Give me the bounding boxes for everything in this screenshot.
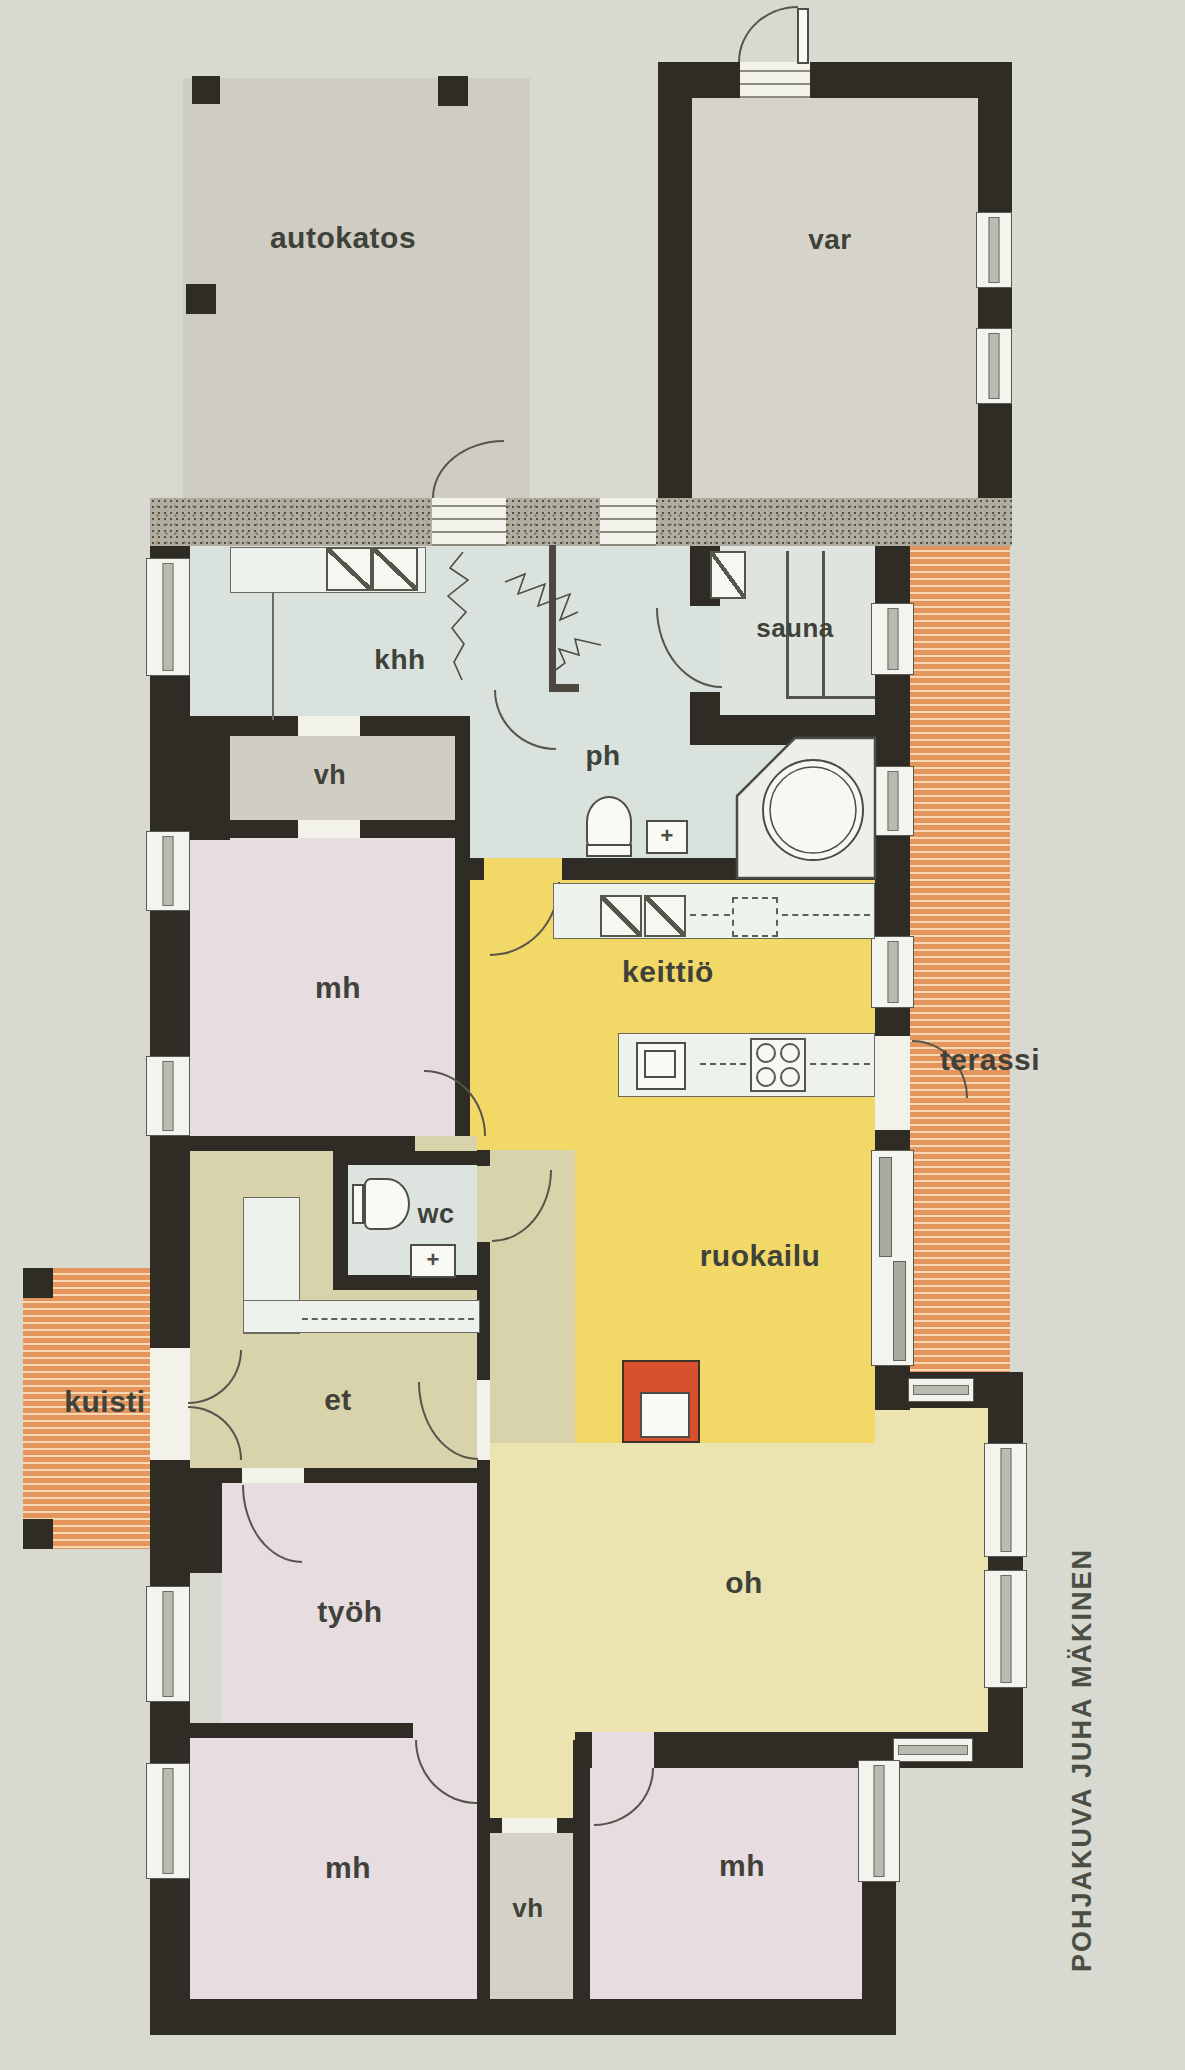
wc-sink-icon bbox=[410, 1244, 456, 1278]
floor-plan: autokatos var khh sauna ph vh mh keittiö… bbox=[0, 0, 1185, 2070]
carport-post bbox=[438, 76, 468, 106]
wall-central-vertical bbox=[477, 1150, 490, 1833]
window bbox=[871, 766, 914, 836]
doorway bbox=[502, 1818, 557, 1833]
room-label-tyoh: työh bbox=[317, 1595, 382, 1629]
wall-bottom-exterior bbox=[150, 1999, 896, 2035]
porch-doorway bbox=[150, 1348, 190, 1460]
plumbing-squiggle-icon bbox=[428, 552, 498, 682]
window bbox=[858, 1760, 900, 1882]
freezer-icon bbox=[644, 895, 686, 937]
wall-top-speckled bbox=[150, 498, 1012, 546]
wall-vh-bottom-w bbox=[477, 1833, 490, 1999]
counter-dash bbox=[690, 914, 730, 916]
room-label-sauna: sauna bbox=[756, 613, 834, 644]
sink-icon bbox=[646, 820, 688, 854]
bathtub-icon bbox=[731, 732, 877, 880]
room-ruokailu bbox=[575, 1150, 875, 1443]
doorway bbox=[415, 1136, 477, 1151]
room-label-vh-bottom: vh bbox=[512, 1893, 543, 1924]
room-label-mh-bottom-right: mh bbox=[719, 1849, 765, 1883]
window bbox=[984, 1570, 1027, 1688]
room-label-var: var bbox=[808, 224, 852, 256]
closet-door-gap bbox=[298, 820, 360, 838]
room-autokatos bbox=[183, 78, 530, 498]
hall-closet bbox=[243, 1300, 480, 1333]
closet-door-gap bbox=[298, 716, 360, 736]
window bbox=[146, 558, 190, 676]
counter-dash bbox=[810, 1063, 870, 1065]
room-label-khh: khh bbox=[374, 644, 425, 676]
doorway bbox=[477, 1166, 490, 1242]
wall-vh-bottom-e bbox=[573, 1740, 590, 1999]
fireplace-hearth bbox=[640, 1392, 690, 1438]
dishwasher-icon bbox=[732, 897, 778, 937]
door-leaf bbox=[797, 8, 809, 64]
doorway bbox=[484, 858, 562, 880]
doorway bbox=[242, 1468, 304, 1483]
room-label-mh-top: mh bbox=[315, 971, 361, 1005]
room-label-ruokailu: ruokailu bbox=[700, 1239, 821, 1273]
window bbox=[871, 603, 914, 675]
counter-dash bbox=[700, 1063, 746, 1065]
wall-tyoh-n bbox=[184, 1468, 477, 1483]
window bbox=[146, 1763, 190, 1879]
entry-doorway-khh bbox=[432, 498, 506, 546]
room-label-keittio: keittiö bbox=[622, 955, 714, 989]
doorway bbox=[477, 1380, 490, 1460]
window bbox=[976, 328, 1012, 404]
window bbox=[976, 212, 1012, 288]
partition-foot bbox=[549, 684, 579, 692]
toilet-icon bbox=[586, 796, 632, 848]
room-label-mh-bottom-left: mh bbox=[325, 1851, 371, 1885]
room-label-autokatos: autokatos bbox=[270, 221, 416, 255]
room-label-vh-top: vh bbox=[314, 760, 347, 791]
doorway bbox=[592, 1732, 654, 1768]
window bbox=[871, 936, 914, 1008]
sauna-stove-icon bbox=[710, 551, 746, 599]
window bbox=[908, 1378, 974, 1402]
room-label-terassi: terassi bbox=[940, 1043, 1040, 1077]
appliance-icon bbox=[372, 547, 418, 591]
wc-toilet-tank bbox=[352, 1184, 364, 1224]
island-sink-basin bbox=[644, 1050, 676, 1078]
hall-dash-line bbox=[302, 1318, 474, 1320]
plumbing-squiggle-icon bbox=[545, 635, 605, 680]
room-label-et: et bbox=[324, 1383, 352, 1417]
wc-toilet-icon bbox=[364, 1178, 410, 1230]
toilet-tank bbox=[586, 844, 632, 857]
terrace-doorway bbox=[875, 1036, 910, 1130]
corridor bbox=[490, 1443, 575, 1833]
wall-tyoh-block bbox=[184, 1483, 222, 1573]
counter-dash bbox=[782, 914, 870, 916]
entry-doorway-ph bbox=[600, 498, 656, 546]
room-label-kuisti: kuisti bbox=[64, 1385, 145, 1419]
khh-cabinet-line bbox=[272, 593, 274, 720]
stove-burners-icon bbox=[750, 1038, 806, 1092]
window bbox=[146, 1056, 190, 1136]
wall-vh-top-e bbox=[455, 716, 470, 840]
window bbox=[893, 1738, 973, 1762]
window bbox=[146, 1586, 190, 1702]
room-label-wc: wc bbox=[417, 1199, 454, 1230]
room-label-oh: oh bbox=[725, 1566, 763, 1600]
window bbox=[984, 1443, 1027, 1557]
window bbox=[146, 831, 190, 911]
room-label-ph: ph bbox=[585, 740, 620, 772]
appliance-icon bbox=[326, 547, 372, 591]
room-var bbox=[692, 98, 978, 507]
carport-post bbox=[186, 284, 216, 314]
storage-doorway bbox=[740, 62, 810, 98]
photo-credit: POHJAKUVA JUHA MÄKINEN bbox=[1060, 1460, 1104, 2060]
sliding-glass-door bbox=[871, 1150, 914, 1366]
door-arc bbox=[738, 6, 798, 62]
porch-post bbox=[23, 1268, 53, 1298]
doorway bbox=[413, 1723, 477, 1738]
porch-post bbox=[23, 1519, 53, 1549]
sauna-bench-line bbox=[786, 696, 875, 699]
plumbing-squiggle-icon bbox=[500, 572, 580, 642]
room-terassi bbox=[910, 545, 1010, 1372]
fridge-icon bbox=[600, 895, 642, 937]
carport-post bbox=[192, 76, 220, 104]
room-oh-east bbox=[875, 1408, 988, 1733]
